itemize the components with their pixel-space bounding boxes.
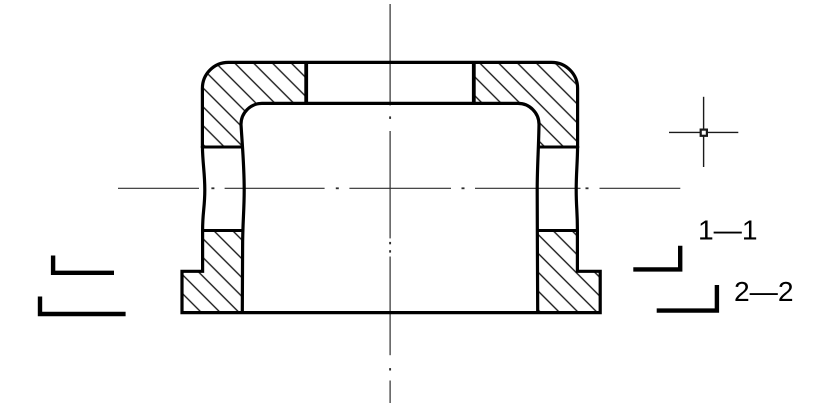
svg-text:1—1: 1—1	[698, 214, 758, 246]
svg-text:2—2: 2—2	[734, 275, 794, 307]
